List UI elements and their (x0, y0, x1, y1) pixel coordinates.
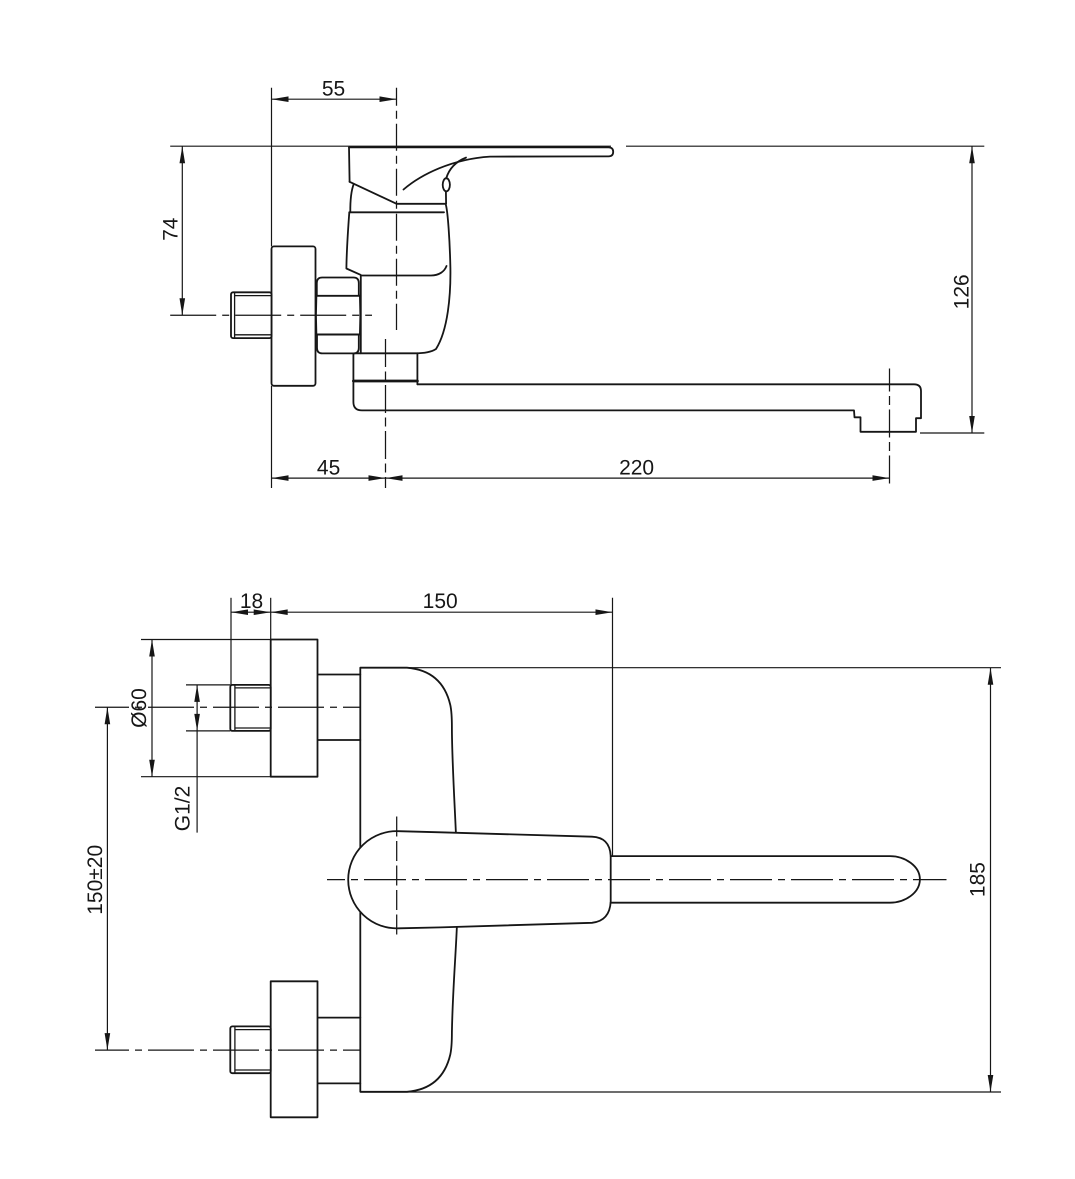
svg-text:150: 150 (423, 590, 458, 613)
svg-text:18: 18 (240, 590, 263, 613)
svg-text:G1/2: G1/2 (172, 786, 195, 832)
svg-text:55: 55 (322, 78, 345, 101)
svg-text:Ø60: Ø60 (128, 688, 151, 728)
svg-text:126: 126 (950, 274, 973, 309)
svg-text:74: 74 (159, 217, 182, 241)
svg-text:185: 185 (967, 862, 990, 897)
svg-text:45: 45 (317, 456, 340, 479)
svg-text:220: 220 (619, 457, 654, 480)
svg-text:150±20: 150±20 (84, 845, 107, 915)
